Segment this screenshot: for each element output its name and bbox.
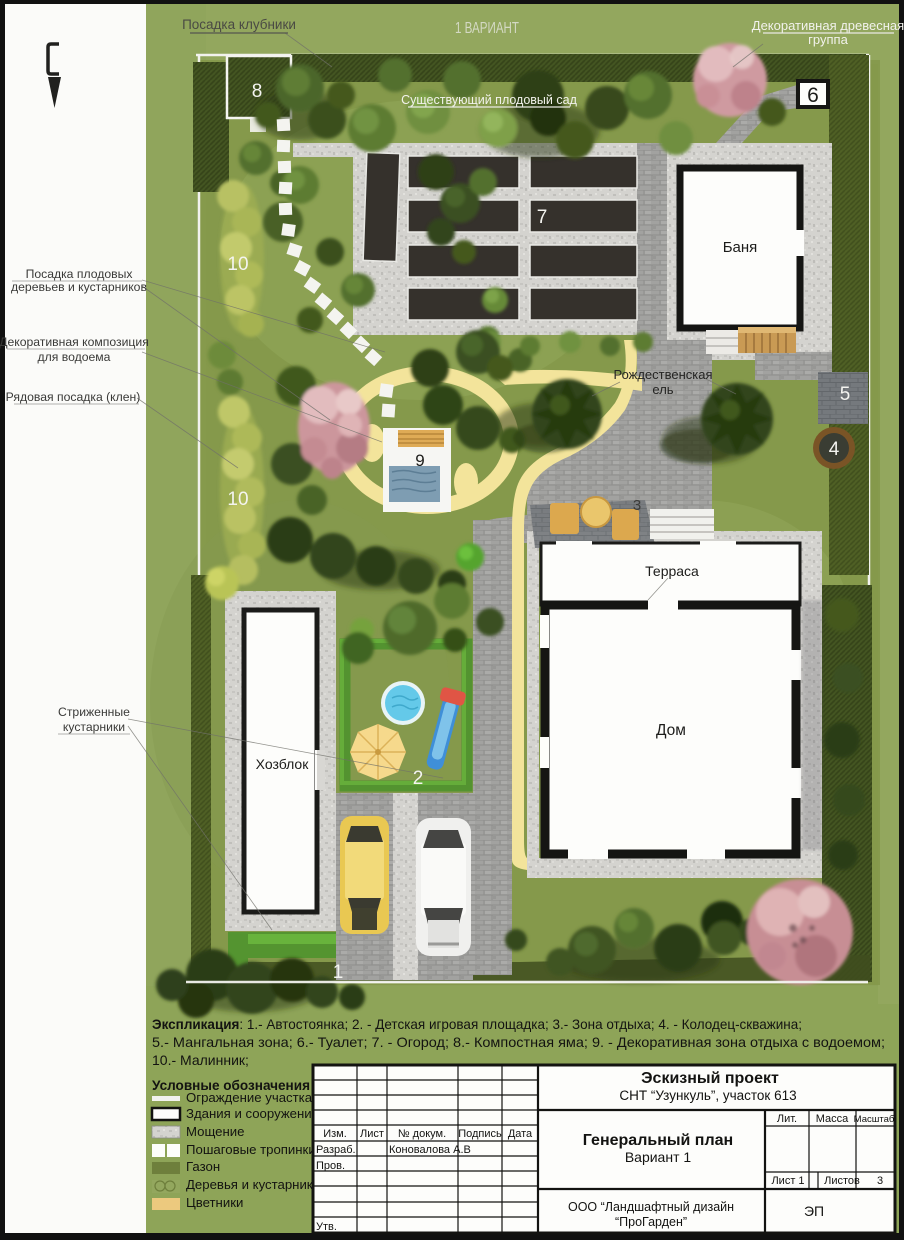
svg-text:8: 8 bbox=[252, 81, 263, 102]
svg-text:Разраб.: Разраб. bbox=[316, 1144, 356, 1156]
svg-text:3: 3 bbox=[633, 497, 641, 514]
svg-text:Декоративная композиция: Декоративная композиция bbox=[0, 335, 149, 349]
svg-text:10: 10 bbox=[227, 254, 248, 275]
svg-text:Мощение: Мощение bbox=[186, 1124, 245, 1139]
svg-text:Изм.: Изм. bbox=[323, 1128, 347, 1140]
svg-text:4: 4 bbox=[829, 439, 840, 460]
svg-text:Пошаговые тропинки: Пошаговые тропинки bbox=[186, 1142, 316, 1157]
svg-text:кустарники: кустарники bbox=[63, 720, 125, 734]
svg-text:Здания и сооружения: Здания и сооружения bbox=[186, 1106, 319, 1121]
svg-text:9: 9 bbox=[415, 451, 424, 470]
svg-text:Рядовая посадка (клен): Рядовая посадка (клен) bbox=[6, 390, 141, 404]
svg-text:для водоема: для водоема bbox=[38, 350, 111, 364]
svg-text:Ограждение участка: Ограждение участка bbox=[186, 1090, 313, 1105]
svg-text:Вариант 1: Вариант 1 bbox=[625, 1149, 692, 1165]
svg-text:Газон: Газон bbox=[186, 1159, 220, 1174]
svg-text:“ПроГарден”: “ПроГарден” bbox=[615, 1215, 687, 1229]
svg-text:Дом: Дом bbox=[656, 722, 686, 739]
svg-text:Утв.: Утв. bbox=[316, 1221, 337, 1233]
svg-text:5.- Мангальная зона; 6.- Туале: 5.- Мангальная зона; 6.- Туалет; 7. - Ог… bbox=[152, 1034, 885, 1050]
svg-text:10.- Малинник;: 10.- Малинник; bbox=[152, 1052, 249, 1068]
svg-text:группа: группа bbox=[808, 32, 848, 47]
svg-text:10: 10 bbox=[227, 489, 248, 510]
svg-text:Генеральный план: Генеральный план bbox=[583, 1132, 733, 1149]
svg-text:Посадка плодовых: Посадка плодовых bbox=[26, 267, 133, 281]
svg-text:Баня: Баня bbox=[723, 239, 758, 256]
svg-text:Экспликация: 1.- Автостоянка;: Экспликация: 1.- Автостоянка; 2. - Детск… bbox=[152, 1016, 802, 1032]
svg-text:ель: ель bbox=[652, 382, 673, 397]
svg-text:Стриженные: Стриженные bbox=[58, 705, 130, 719]
svg-text:Дата: Дата bbox=[508, 1128, 533, 1140]
svg-text:2: 2 bbox=[413, 768, 424, 789]
svg-text:СНТ “Узункуль”, участок 613: СНТ “Узункуль”, участок 613 bbox=[619, 1088, 796, 1103]
svg-text:Хозблок: Хозблок bbox=[256, 756, 310, 772]
svg-text:Деревья и кустарники: Деревья и кустарники bbox=[186, 1177, 320, 1192]
svg-text:Масштаб: Масштаб bbox=[854, 1114, 895, 1125]
svg-text:3: 3 bbox=[877, 1175, 883, 1187]
svg-text:Пров.: Пров. bbox=[316, 1160, 345, 1172]
svg-text:5: 5 bbox=[840, 384, 851, 405]
svg-text:Посадка клубники: Посадка клубники bbox=[182, 17, 296, 32]
svg-text:7: 7 bbox=[537, 207, 548, 228]
svg-text:Эскизный проект: Эскизный проект bbox=[641, 1070, 779, 1087]
svg-text:Терраса: Терраса bbox=[645, 563, 699, 579]
svg-text:Лист: Лист bbox=[360, 1128, 384, 1140]
svg-text:1: 1 bbox=[333, 962, 344, 983]
svg-text:Подпись: Подпись bbox=[458, 1128, 502, 1140]
svg-text:Рождественская: Рождественская bbox=[613, 367, 712, 382]
svg-text:Листов: Листов bbox=[824, 1175, 860, 1187]
svg-text:№ докум.: № докум. bbox=[398, 1128, 446, 1140]
svg-text:Цветники: Цветники bbox=[186, 1195, 243, 1210]
svg-text:Масса: Масса bbox=[816, 1113, 849, 1125]
svg-text:Лит.: Лит. bbox=[777, 1113, 797, 1125]
svg-text:ООО “Ландшафтный дизайн: ООО “Ландшафтный дизайн bbox=[568, 1200, 734, 1214]
svg-text:Лист 1: Лист 1 bbox=[771, 1175, 804, 1187]
svg-text:Существующий плодовый сад: Существующий плодовый сад bbox=[401, 93, 577, 107]
svg-text:6: 6 bbox=[807, 84, 819, 107]
svg-text:Декоративная древесная: Декоративная древесная bbox=[752, 18, 904, 33]
svg-text:деревьев и кустарников: деревьев и кустарников bbox=[11, 280, 147, 294]
svg-text:Коновалова А.В: Коновалова А.В bbox=[389, 1144, 471, 1156]
svg-text:ЭП: ЭП bbox=[804, 1203, 824, 1219]
svg-text:1 ВАРИАНТ: 1 ВАРИАНТ bbox=[455, 20, 519, 37]
